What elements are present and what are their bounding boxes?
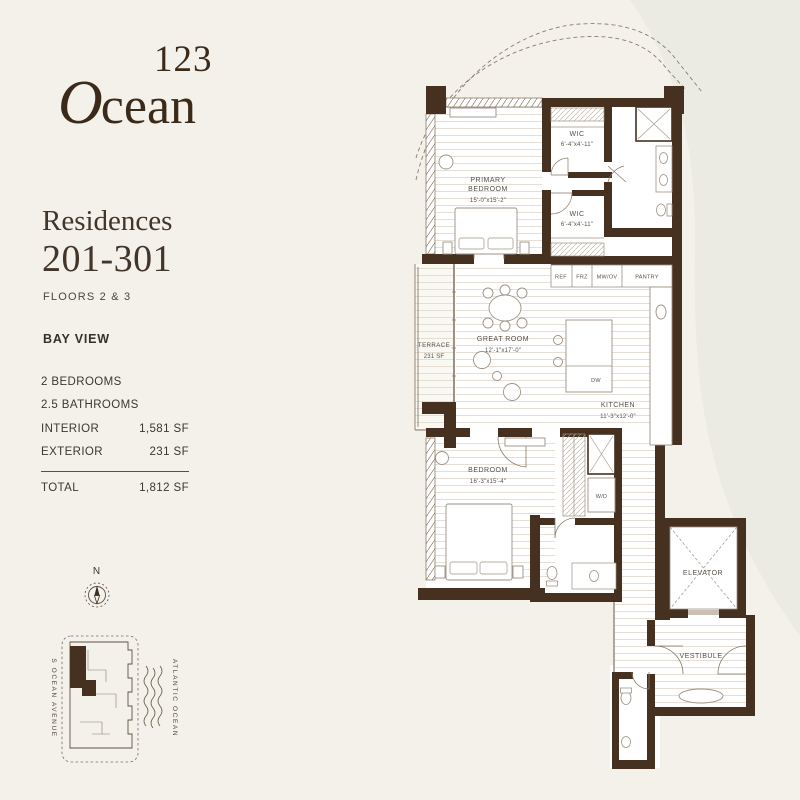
stat-row-exterior: EXTERIOR 231 SF <box>41 441 189 465</box>
logo-initial: O <box>58 69 101 137</box>
stat-label: 2.5 BATHROOMS <box>41 399 139 411</box>
room-label-great-room: GREAT ROOM <box>477 336 529 343</box>
room-label-wic1: WIC <box>569 131 584 138</box>
room-dims-great-room: 12'-1"x17'-0" <box>485 348 521 354</box>
room-dims-wic1: 6'-4"x4'-11" <box>561 142 593 148</box>
stat-label: 2 BEDROOMS <box>41 376 122 388</box>
kitchen-appliance-band: REF FRZ MW/OV PANTRY <box>551 265 672 287</box>
room-dims-bedroom: 16'-3"x15'-4" <box>470 479 506 485</box>
ocean-label: ATLANTIC OCEAN <box>171 659 178 737</box>
room-label-primary-bedroom-1: PRIMARY <box>470 177 505 184</box>
compass-north-label: N <box>79 566 115 577</box>
room-label-vestibule: VESTIBULE <box>679 653 722 660</box>
compass-rose-icon <box>79 577 115 613</box>
appliance-label-mwov: MW/OV <box>597 275 618 281</box>
room-dims-terrace: 231 SF <box>424 354 445 360</box>
room-dims-wic2: 6'-4"x4'-11" <box>561 222 593 228</box>
stat-label: EXTERIOR <box>41 446 103 458</box>
room-label-bedroom: BEDROOM <box>468 467 508 474</box>
stat-label: TOTAL <box>41 482 79 494</box>
wave-lines-icon <box>144 666 162 728</box>
appliance-label-ref: REF <box>555 275 567 281</box>
view-label: BAY VIEW <box>43 332 110 346</box>
stats-divider <box>41 471 189 472</box>
room-label-elevator: ELEVATOR <box>683 570 723 577</box>
room-label-kitchen: KITCHEN <box>601 402 635 409</box>
logo-rest: cean <box>101 78 196 135</box>
room-dims-kitchen: 11'-3"x12'-0" <box>600 414 636 420</box>
floor-plan: REF FRZ MW/OV PANTRY DW <box>410 10 770 780</box>
stat-row-bathrooms: 2.5 BATHROOMS <box>41 394 189 418</box>
compass: N <box>79 566 115 618</box>
elevator-door-sill <box>688 610 719 615</box>
room-label-primary-bedroom-2: BEDROOM <box>468 186 508 193</box>
key-plan-unit-highlight <box>70 646 96 696</box>
appliance-label-pantry: PANTRY <box>635 275 659 281</box>
brand-logo: 123 Ocean <box>58 44 213 130</box>
floors-label: FLOORS 2 & 3 <box>43 291 131 303</box>
room-dims-primary-bedroom: 15'-0"x15'-2" <box>470 198 506 204</box>
stat-value: 231 SF <box>150 446 189 458</box>
elevator-cab <box>670 527 737 609</box>
washer-dryer-label: W/D <box>596 494 608 500</box>
vestibule-console <box>679 689 723 703</box>
street-label: S OCEAN AVENUE <box>50 658 57 737</box>
dishwasher-label: DW <box>591 378 601 384</box>
stat-value: 1,812 SF <box>139 482 189 494</box>
key-plan: S OCEAN AVENUE ATLANTIC OCEAN <box>40 630 190 770</box>
stats-list: 2 BEDROOMS 2.5 BATHROOMS INTERIOR 1,581 … <box>41 370 189 500</box>
stat-row-total: TOTAL 1,812 SF <box>41 476 189 500</box>
room-label-terrace: TERRACE <box>418 343 450 349</box>
residences-label: Residences <box>42 206 172 238</box>
logo-number: 123 <box>154 44 213 75</box>
stat-row-bedrooms: 2 BEDROOMS <box>41 370 189 394</box>
stat-label: INTERIOR <box>41 423 99 435</box>
logo-wordmark: Ocean <box>58 77 213 130</box>
shower-wd-column <box>588 434 615 512</box>
stat-value: 1,581 SF <box>139 423 189 435</box>
residence-title: Residences 201-301 <box>42 206 172 282</box>
stat-row-interior: INTERIOR 1,581 SF <box>41 417 189 441</box>
floor-plan-sheet: { "colors":{"wall":"#46301f","background… <box>0 0 800 800</box>
unit-number: 201-301 <box>42 238 172 282</box>
room-label-wic2: WIC <box>569 211 584 218</box>
appliance-label-frz: FRZ <box>576 275 588 281</box>
